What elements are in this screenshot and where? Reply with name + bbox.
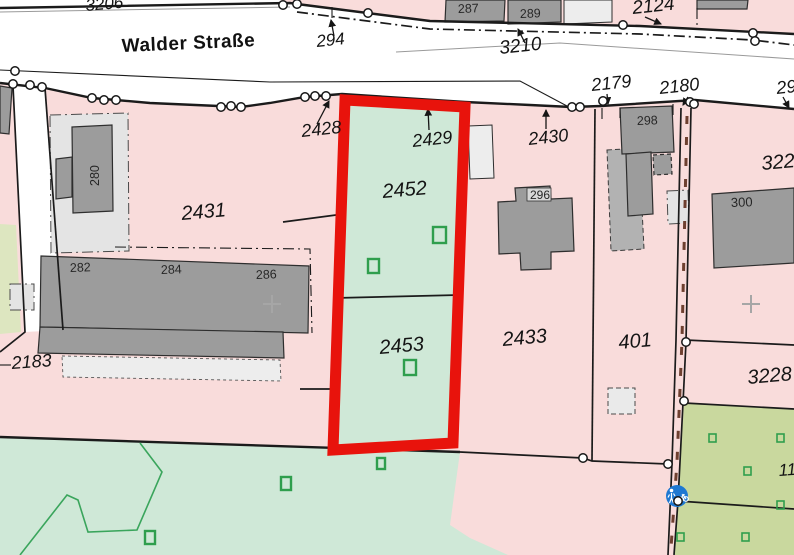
building-label-289: 289 [520, 6, 541, 21]
building-298-annex [653, 154, 672, 175]
highlighted-parcel-fill [333, 100, 465, 450]
building-light-mid [468, 125, 494, 179]
building-280-annex [56, 157, 72, 199]
building-label-282: 282 [70, 260, 91, 275]
building-label-296: 296 [530, 188, 550, 202]
building-298-wing [626, 152, 653, 216]
building-label-284: 284 [161, 262, 182, 277]
parcel-label-2453: 2453 [378, 333, 425, 359]
parcel-label-401: 401 [618, 329, 653, 354]
parcel-label-11: 11 [778, 460, 794, 480]
parcel-label-2430: 2430 [526, 125, 569, 149]
cadastral-map: Walder Straße 32062943210212421792180292… [0, 0, 794, 555]
building-300 [712, 188, 794, 268]
building-label-287: 287 [458, 1, 479, 16]
parcel-label-29: 29 [774, 76, 794, 98]
building-label-300: 300 [731, 194, 753, 210]
building-label-280: 280 [88, 165, 102, 186]
parcel-label-2452: 2452 [381, 177, 428, 203]
terrace-strip [62, 356, 281, 381]
parcel-label-3228: 3228 [747, 363, 793, 389]
parcel-label-322: 322 [761, 150, 794, 175]
parcel-label-2429: 2429 [410, 127, 453, 151]
parcel-label-2433: 2433 [501, 325, 548, 351]
parcel-label-2179: 2179 [589, 71, 632, 95]
building-2124 [697, 0, 748, 9]
parcel-label-294: 294 [314, 29, 345, 51]
dashed-structure-401 [608, 388, 635, 414]
parcel-label-2180: 2180 [657, 74, 700, 98]
map-canvas[interactable]: Walder Straße 32062943210212421792180292… [0, 0, 794, 555]
parcel-label-3210: 3210 [498, 34, 543, 59]
parcel-label-2428: 2428 [299, 117, 342, 141]
meadow-area-south [0, 437, 508, 555]
building-282-284-286-wing [38, 327, 284, 358]
parcel-label-2183: 2183 [10, 350, 52, 373]
parcel-label-2431: 2431 [180, 199, 227, 225]
building-label-298: 298 [637, 113, 658, 128]
garden-area-southeast [674, 403, 794, 555]
building-light-top [564, 0, 612, 24]
building-label-286: 286 [256, 267, 277, 282]
